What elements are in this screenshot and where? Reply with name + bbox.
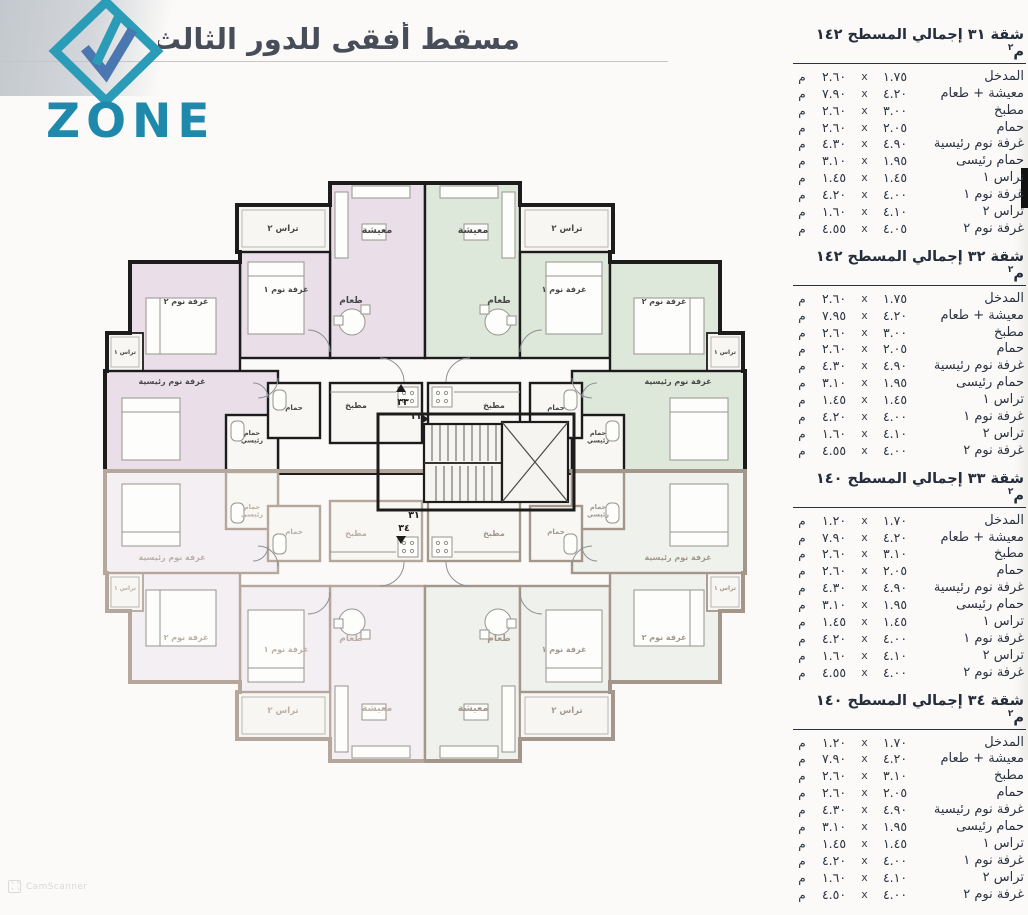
dimension-row: المدخل١.٧٠x١.٢٠م (793, 735, 1026, 752)
room-name: حمام رئيسى (918, 597, 1026, 614)
dimension-value: ١.٧٥ (872, 291, 918, 308)
room-name: المدخل (918, 513, 1026, 530)
room-name: حمام (918, 563, 1026, 580)
dimension-value: ٢.٠٥ (872, 341, 918, 358)
apartment-number: ٣٣ (397, 397, 409, 408)
dimension-row: غرفة نوم رئيسية٤.٩٠x٤.٣٠م (793, 136, 1026, 153)
room-label-master-bath: حمامرئيسي (587, 429, 609, 445)
room-label-bedroom-2: غرفة نوم ٢ (164, 633, 209, 642)
camscanner-icon (8, 880, 21, 893)
dimension-value: ١.٧٠ (872, 513, 918, 530)
dimension-value: ٣.٠٠ (872, 103, 918, 120)
dimension-row: حمام٢.٠٥x٢.٦٠م (793, 341, 1026, 358)
times-sign: x (857, 426, 872, 443)
dimension-value: ٤.٢٠ (872, 530, 918, 547)
meter-unit: م (793, 648, 811, 665)
meter-unit: م (793, 665, 811, 682)
dimension-row: مطبخ٣.٠٠x٢.٦٠م (793, 325, 1026, 342)
dimension-value: ٤.٠٥ (872, 221, 918, 238)
meter-unit: م (793, 308, 811, 325)
room-label-living: معيشة (458, 225, 489, 236)
dimension-value: ٤.٠٠ (872, 853, 918, 870)
times-sign: x (857, 614, 872, 631)
meter-unit: م (793, 785, 811, 802)
times-sign: x (857, 86, 872, 103)
dimension-value: ١.٤٥ (872, 170, 918, 187)
dimension-value: ٤.١٠ (872, 648, 918, 665)
times-sign: x (857, 836, 872, 853)
dimension-value: ١.٦٠ (811, 426, 857, 443)
times-sign: x (857, 291, 872, 308)
room-name: المدخل (918, 69, 1026, 86)
room-name: تراس ٢ (918, 648, 1026, 665)
dimension-value: ٤.١٠ (872, 426, 918, 443)
room-label-master-bath: حمامرئيسي (241, 429, 263, 445)
dimension-value: ٧.٩٠ (811, 751, 857, 768)
room-label-dining: طعام (487, 634, 511, 644)
room-label-kitchen: مطبخ (345, 529, 367, 538)
dimension-value: ٣.١٠ (872, 546, 918, 563)
room-name: حمام رئيسى (918, 375, 1026, 392)
times-sign: x (857, 802, 872, 819)
dimension-value: ٤.٠٠ (872, 887, 918, 904)
meter-unit: م (793, 409, 811, 426)
room-name: غرفة نوم ١ (918, 409, 1026, 426)
room-label-kitchen: مطبخ (483, 401, 505, 410)
apartment-table: شقة ٣٣ إجمالي المسطح ١٤٠ م٢المدخل١.٧٠x١.… (793, 471, 1026, 682)
apartment-number: ٣١ (408, 510, 420, 521)
meter-unit: م (793, 153, 811, 170)
dimension-value: ٤.٠٠ (872, 631, 918, 648)
room-name: حمام (918, 341, 1026, 358)
times-sign: x (857, 187, 872, 204)
meter-unit: م (793, 358, 811, 375)
room-name: مطبخ (918, 546, 1026, 563)
room-label-living: معيشة (362, 225, 393, 236)
dimension-value: ٤.٩٠ (872, 358, 918, 375)
dimension-value: ٤.٣٠ (811, 136, 857, 153)
dimension-row: تراس ٢٤.١٠x١.٦٠م (793, 648, 1026, 665)
dimension-value: ٣.١٠ (811, 819, 857, 836)
dimension-value: ٢.٠٥ (872, 563, 918, 580)
times-sign: x (857, 341, 872, 358)
dimension-value: ٢.٦٠ (811, 563, 857, 580)
room-label-bath: حمام (547, 528, 565, 536)
times-sign: x (857, 546, 872, 563)
times-sign: x (857, 136, 872, 153)
dimension-row: غرفة نوم ١٤.٠٠x٤.٢٠م (793, 187, 1026, 204)
room-name: غرفة نوم ٢ (918, 221, 1026, 238)
dimension-value: ٤.٣٠ (811, 580, 857, 597)
meter-unit: م (793, 426, 811, 443)
dimension-value: ٤.٥٥ (811, 221, 857, 238)
dimension-row: المدخل١.٧٠x١.٢٠م (793, 513, 1026, 530)
room-name: معيشة + طعام (918, 86, 1026, 103)
dimension-value: ١.٤٥ (872, 836, 918, 853)
dimension-row: المدخل١.٧٥x٢.٦٠م (793, 69, 1026, 86)
dimension-value: ١.٤٥ (811, 392, 857, 409)
dimension-row: تراس ٢٤.١٠x١.٦٠م (793, 204, 1026, 221)
apartment-table: شقة ٣٤ إجمالي المسطح ١٤٠ م٢المدخل١.٧٠x١.… (793, 693, 1026, 904)
times-sign: x (857, 768, 872, 785)
dimension-row: تراس ١١.٤٥x١.٤٥م (793, 614, 1026, 631)
times-sign: x (857, 853, 872, 870)
dimension-value: ٤.٠٠ (872, 443, 918, 460)
dimension-value: ٤.٩٠ (872, 802, 918, 819)
dimension-value: ١.٦٠ (811, 870, 857, 887)
dimension-value: ٤.٢٠ (811, 631, 857, 648)
times-sign: x (857, 530, 872, 547)
room-name: تراس ١ (918, 392, 1026, 409)
dimension-value: ١.٦٠ (811, 648, 857, 665)
meter-unit: م (793, 580, 811, 597)
room-label-master-bath: حمامرئيسي (587, 503, 609, 519)
dimension-row: المدخل١.٧٥x٢.٦٠م (793, 291, 1026, 308)
times-sign: x (857, 563, 872, 580)
dimension-row: حمام رئيسى١.٩٥x٣.١٠م (793, 597, 1026, 614)
dimension-value: ٤.٢٠ (872, 86, 918, 103)
room-label-bedroom-1: غرفة نوم ١ (542, 285, 587, 294)
room-label-terrace-2: تراس ٢ (551, 224, 582, 234)
times-sign: x (857, 153, 872, 170)
room-label-master-bed: غرفة نوم رئيسية (644, 377, 711, 386)
dimension-value: ٢.٠٥ (872, 785, 918, 802)
dimension-value: ٤.٢٠ (872, 751, 918, 768)
room-label-bath: حمام (547, 404, 565, 412)
dimension-value: ٤.٥٠ (811, 887, 857, 904)
dimension-value: ٢.٦٠ (811, 120, 857, 137)
meter-unit: م (793, 546, 811, 563)
times-sign: x (857, 887, 872, 904)
room-label-kitchen: مطبخ (483, 529, 505, 538)
dimension-value: ١.٦٠ (811, 204, 857, 221)
dimension-value: ٧.٩٥ (811, 308, 857, 325)
room-name: غرفة نوم رئيسية (918, 358, 1026, 375)
dimension-value: ١.٩٥ (872, 819, 918, 836)
dimension-value: ١.٧٠ (872, 735, 918, 752)
times-sign: x (857, 103, 872, 120)
room-name: غرفة نوم رئيسية (918, 802, 1026, 819)
apartment-bottom-left (105, 471, 425, 761)
meter-unit: م (793, 136, 811, 153)
room-label-dining: طعام (487, 296, 511, 306)
meter-unit: م (793, 597, 811, 614)
meter-unit: م (793, 836, 811, 853)
times-sign: x (857, 580, 872, 597)
times-sign: x (857, 735, 872, 752)
meter-unit: م (793, 443, 811, 460)
dimension-row: غرفة نوم ٢٤.٠٠x٤.٥٥م (793, 443, 1026, 460)
times-sign: x (857, 870, 872, 887)
room-name: المدخل (918, 735, 1026, 752)
meter-unit: م (793, 614, 811, 631)
times-sign: x (857, 375, 872, 392)
room-label-terrace-2: تراس ٢ (267, 706, 298, 716)
times-sign: x (857, 325, 872, 342)
dimension-row: معيشة + طعام٤.٢٠x٧.٩٠م (793, 86, 1026, 103)
room-name: تراس ١ (918, 836, 1026, 853)
dimension-value: ٢.٦٠ (811, 768, 857, 785)
dimension-row: معيشة + طعام٤.٢٠x٧.٩٠م (793, 751, 1026, 768)
room-name: حمام (918, 785, 1026, 802)
room-label-master-bath: حمامرئيسي (241, 503, 263, 519)
meter-unit: م (793, 735, 811, 752)
room-name: غرفة نوم رئيسية (918, 580, 1026, 597)
floor-plan: معيشةطعامتراس ٢غرفة نوم ١غرفة نوم ٢تراس … (78, 165, 778, 783)
meter-unit: م (793, 870, 811, 887)
apartment-table-title: شقة ٣١ إجمالي المسطح ١٤٢ م٢ (793, 27, 1026, 64)
dimension-row: غرفة نوم ٢٤.٠٠x٤.٥٠م (793, 887, 1026, 904)
room-label-living: معيشة (362, 703, 393, 714)
times-sign: x (857, 221, 872, 238)
dimension-value: ٤.٠٠ (872, 409, 918, 426)
room-label-master-bed: غرفة نوم رئيسية (644, 553, 711, 562)
dimension-value: ٣.٠٠ (872, 325, 918, 342)
times-sign: x (857, 785, 872, 802)
dimension-value: ١.٧٥ (872, 69, 918, 86)
dimension-value: ٣.١٠ (872, 768, 918, 785)
room-name: غرفة نوم ١ (918, 853, 1026, 870)
dimension-value: ٤.٥٥ (811, 665, 857, 682)
dimension-row: غرفة نوم ١٤.٠٠x٤.٢٠م (793, 631, 1026, 648)
meter-unit: م (793, 802, 811, 819)
dimension-value: ٤.٩٠ (872, 136, 918, 153)
times-sign: x (857, 69, 872, 86)
dimension-value: ١.٢٠ (811, 513, 857, 530)
meter-unit: م (793, 530, 811, 547)
dimension-tables: شقة ٣١ إجمالي المسطح ١٤٢ م٢المدخل١.٧٥x٢.… (793, 27, 1026, 915)
dimension-value: ١.٩٥ (872, 153, 918, 170)
room-label-terrace-1: تراس ١ (114, 349, 136, 356)
dimension-value: ٢.٦٠ (811, 103, 857, 120)
dimension-row: حمام رئيسى١.٩٥x٣.١٠م (793, 153, 1026, 170)
room-name: غرفة نوم ٢ (918, 665, 1026, 682)
dimension-value: ٤.٢٠ (811, 853, 857, 870)
room-label-bedroom-1: غرفة نوم ١ (264, 645, 309, 654)
dimension-value: ٢.٦٠ (811, 291, 857, 308)
dimension-row: تراس ١١.٤٥x١.٤٥م (793, 836, 1026, 853)
room-name: غرفة نوم ١ (918, 631, 1026, 648)
apartment-number: ٣٤ (398, 523, 410, 534)
times-sign: x (857, 513, 872, 530)
meter-unit: م (793, 751, 811, 768)
room-label-kitchen: مطبخ (345, 401, 367, 410)
dimension-row: حمام٢.٠٥x٢.٦٠م (793, 563, 1026, 580)
room-label-terrace-2: تراس ٢ (551, 706, 582, 716)
dimension-row: غرفة نوم ٢٤.٠٥x٤.٥٥م (793, 221, 1026, 238)
dimension-row: معيشة + طعام٤.٢٠x٧.٩٠م (793, 530, 1026, 547)
room-name: مطبخ (918, 325, 1026, 342)
dimension-value: ١.٤٥ (872, 392, 918, 409)
dimension-value: ٧.٩٠ (811, 86, 857, 103)
dimension-value: ٢.٠٥ (872, 120, 918, 137)
dimension-row: معيشة + طعام٤.٢٠x٧.٩٥م (793, 308, 1026, 325)
meter-unit: م (793, 513, 811, 530)
meter-unit: م (793, 103, 811, 120)
dimension-value: ١.٩٥ (872, 375, 918, 392)
scanned-floor-plan-sheet: { "header": { "title": "مسقط أفقى للدور … (0, 0, 1028, 900)
room-label-bedroom-2: غرفة نوم ٢ (642, 633, 687, 642)
dimension-row: حمام رئيسى١.٩٥x٣.١٠م (793, 375, 1026, 392)
dimension-value: ٧.٩٠ (811, 530, 857, 547)
dimension-row: مطبخ٣.٠٠x٢.٦٠م (793, 103, 1026, 120)
times-sign: x (857, 392, 872, 409)
times-sign: x (857, 665, 872, 682)
room-label-terrace-2: تراس ٢ (267, 224, 298, 234)
room-name: تراس ١ (918, 170, 1026, 187)
dimension-value: ٤.٣٠ (811, 802, 857, 819)
room-name: حمام رئيسى (918, 153, 1026, 170)
dimension-value: ٤.٠٠ (872, 665, 918, 682)
room-name: مطبخ (918, 768, 1026, 785)
room-name: معيشة + طعام (918, 308, 1026, 325)
apartment-table-title: شقة ٣٤ إجمالي المسطح ١٤٠ م٢ (793, 693, 1026, 730)
dimension-value: ١.٤٥ (872, 614, 918, 631)
dimension-value: ٤.٣٠ (811, 358, 857, 375)
dimension-row: حمام رئيسى١.٩٥x٣.١٠م (793, 819, 1026, 836)
room-name: تراس ٢ (918, 204, 1026, 221)
room-label-terrace-1: تراس ١ (714, 585, 736, 592)
meter-unit: م (793, 69, 811, 86)
meter-unit: م (793, 853, 811, 870)
dimension-row: غرفة نوم ١٤.٠٠x٤.٢٠م (793, 853, 1026, 870)
room-label-master-bed: غرفة نوم رئيسية (138, 553, 205, 562)
room-label-bedroom-2: غرفة نوم ٢ (642, 297, 687, 306)
dimension-row: غرفة نوم ١٤.٠٠x٤.٢٠م (793, 409, 1026, 426)
room-name: مطبخ (918, 103, 1026, 120)
meter-unit: م (793, 291, 811, 308)
dimension-row: تراس ٢٤.١٠x١.٦٠م (793, 870, 1026, 887)
meter-unit: م (793, 563, 811, 580)
dimension-value: ٤.٢٠ (811, 409, 857, 426)
dimension-value: ١.٤٥ (811, 836, 857, 853)
apartment-table-title: شقة ٣٢ إجمالي المسطح ١٤٢ م٢ (793, 249, 1026, 286)
room-label-terrace-1: تراس ١ (714, 349, 736, 356)
room-label-bedroom-2: غرفة نوم ٢ (164, 297, 209, 306)
dimension-value: ٤.١٠ (872, 870, 918, 887)
room-label-bedroom-1: غرفة نوم ١ (542, 645, 587, 654)
room-name: تراس ٢ (918, 426, 1026, 443)
meter-unit: م (793, 631, 811, 648)
room-label-bedroom-1: غرفة نوم ١ (264, 285, 309, 294)
dimension-value: ٣.١٠ (811, 153, 857, 170)
dimension-value: ٣.١٠ (811, 597, 857, 614)
dimension-value: ٤.١٠ (872, 204, 918, 221)
dimension-value: ١.٤٥ (811, 170, 857, 187)
times-sign: x (857, 170, 872, 187)
dimension-row: غرفة نوم رئيسية٤.٩٠x٤.٣٠م (793, 802, 1026, 819)
times-sign: x (857, 204, 872, 221)
room-name: غرفة نوم ٢ (918, 443, 1026, 460)
times-sign: x (857, 597, 872, 614)
room-label-master-bed: غرفة نوم رئيسية (138, 377, 205, 386)
apartment-number: ٣٢ (411, 411, 423, 422)
dimension-row: تراس ٢٤.١٠x١.٦٠م (793, 426, 1026, 443)
dimension-value: ٤.٩٠ (872, 580, 918, 597)
dimension-row: غرفة نوم رئيسية٤.٩٠x٤.٣٠م (793, 580, 1026, 597)
meter-unit: م (793, 887, 811, 904)
dimension-value: ٣.١٠ (811, 375, 857, 392)
dimension-row: حمام٢.٠٥x٢.٦٠م (793, 785, 1026, 802)
room-name: المدخل (918, 291, 1026, 308)
times-sign: x (857, 648, 872, 665)
dimension-value: ١.٢٠ (811, 735, 857, 752)
apartment-bottom-right (425, 471, 745, 761)
apartment-table-title: شقة ٣٣ إجمالي المسطح ١٤٠ م٢ (793, 471, 1026, 508)
room-label-living: معيشة (458, 703, 489, 714)
dimension-value: ٤.٥٥ (811, 443, 857, 460)
times-sign: x (857, 819, 872, 836)
meter-unit: م (793, 325, 811, 342)
times-sign: x (857, 308, 872, 325)
dimension-value: ٢.٦٠ (811, 69, 857, 86)
room-name: حمام رئيسى (918, 819, 1026, 836)
dimension-value: ٢.٦٠ (811, 546, 857, 563)
dimension-value: ٢.٦٠ (811, 325, 857, 342)
room-name: معيشة + طعام (918, 751, 1026, 768)
meter-unit: م (793, 221, 811, 238)
dimension-row: تراس ١١.٤٥x١.٤٥م (793, 170, 1026, 187)
room-name: غرفة نوم ١ (918, 187, 1026, 204)
zone-logo-text: ZONE (46, 94, 215, 149)
meter-unit: م (793, 187, 811, 204)
meter-unit: م (793, 392, 811, 409)
meter-unit: م (793, 768, 811, 785)
room-label-terrace-1: تراس ١ (114, 585, 136, 592)
meter-unit: م (793, 204, 811, 221)
meter-unit: م (793, 341, 811, 358)
dimension-row: غرفة نوم ٢٤.٠٠x٤.٥٥م (793, 665, 1026, 682)
room-label-dining: طعام (339, 634, 363, 644)
room-name: غرفة نوم رئيسية (918, 136, 1026, 153)
apartment-table: شقة ٣٢ إجمالي المسطح ١٤٢ م٢المدخل١.٧٥x٢.… (793, 249, 1026, 460)
times-sign: x (857, 751, 872, 768)
room-name: معيشة + طعام (918, 530, 1026, 547)
dimension-row: حمام٢.٠٥x٢.٦٠م (793, 120, 1026, 137)
times-sign: x (857, 631, 872, 648)
meter-unit: م (793, 86, 811, 103)
dimension-value: ١.٤٥ (811, 614, 857, 631)
camscanner-text: CamScanner (26, 882, 87, 892)
dimension-value: ٢.٦٠ (811, 341, 857, 358)
dimension-row: تراس ١١.٤٥x١.٤٥م (793, 392, 1026, 409)
dimension-value: ٤.٠٠ (872, 187, 918, 204)
times-sign: x (857, 358, 872, 375)
room-name: تراس ٢ (918, 870, 1026, 887)
dimension-row: غرفة نوم رئيسية٤.٩٠x٤.٣٠م (793, 358, 1026, 375)
camscanner-watermark: CamScanner (8, 880, 87, 893)
dimension-row: مطبخ٣.١٠x٢.٦٠م (793, 768, 1026, 785)
page-title: مسقط أفقى للدور الثالث (158, 22, 520, 62)
meter-unit: م (793, 170, 811, 187)
dimension-value: ٢.٦٠ (811, 785, 857, 802)
apartment-table: شقة ٣١ إجمالي المسطح ١٤٢ م٢المدخل١.٧٥x٢.… (793, 27, 1026, 238)
zone-logo: ZONE (18, 0, 198, 164)
times-sign: x (857, 120, 872, 137)
dimension-row: مطبخ٣.١٠x٢.٦٠م (793, 546, 1026, 563)
meter-unit: م (793, 375, 811, 392)
room-name: غرفة نوم ٢ (918, 887, 1026, 904)
room-label-dining: طعام (339, 296, 363, 306)
room-label-bath: حمام (285, 404, 303, 412)
meter-unit: م (793, 819, 811, 836)
times-sign: x (857, 409, 872, 426)
dimension-value: ٤.٢٠ (811, 187, 857, 204)
dimension-value: ١.٩٥ (872, 597, 918, 614)
room-name: تراس ١ (918, 614, 1026, 631)
room-label-bath: حمام (285, 528, 303, 536)
times-sign: x (857, 443, 872, 460)
